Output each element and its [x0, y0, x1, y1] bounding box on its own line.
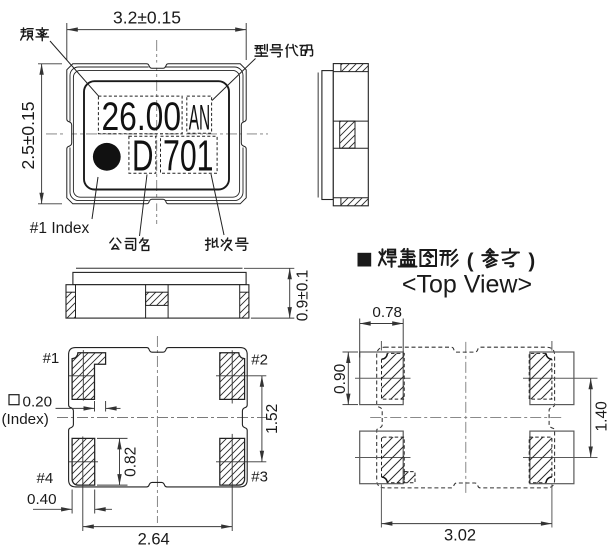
svg-text:<Top View>: <Top View> [402, 271, 532, 299]
svg-text:1.52: 1.52 [264, 404, 281, 434]
svg-text:0.90: 0.90 [332, 363, 349, 394]
svg-text:0.82: 0.82 [123, 447, 140, 477]
svg-text:0.20: 0.20 [23, 394, 53, 411]
svg-text:2.5±0.15: 2.5±0.15 [18, 102, 38, 170]
svg-text:D: D [132, 132, 154, 181]
svg-text:3.2±0.15: 3.2±0.15 [113, 8, 181, 28]
svg-text:2.64: 2.64 [138, 531, 170, 549]
svg-text:0.9±0.1: 0.9±0.1 [294, 270, 311, 322]
svg-text:0.78: 0.78 [372, 304, 402, 321]
svg-text:3.02: 3.02 [444, 527, 476, 545]
svg-text:701: 701 [163, 132, 214, 181]
svg-text:#1 Index: #1 Index [30, 220, 90, 237]
svg-text:(Index): (Index) [2, 411, 49, 428]
svg-text:1.40: 1.40 [593, 401, 608, 432]
svg-text:): ) [528, 249, 535, 272]
svg-text:#3: #3 [251, 469, 268, 486]
svg-text:#1: #1 [43, 350, 60, 367]
svg-text:0.40: 0.40 [27, 491, 57, 508]
svg-text:#2: #2 [251, 352, 268, 369]
svg-text:#4: #4 [37, 470, 54, 487]
svg-text:(: ( [467, 249, 474, 272]
